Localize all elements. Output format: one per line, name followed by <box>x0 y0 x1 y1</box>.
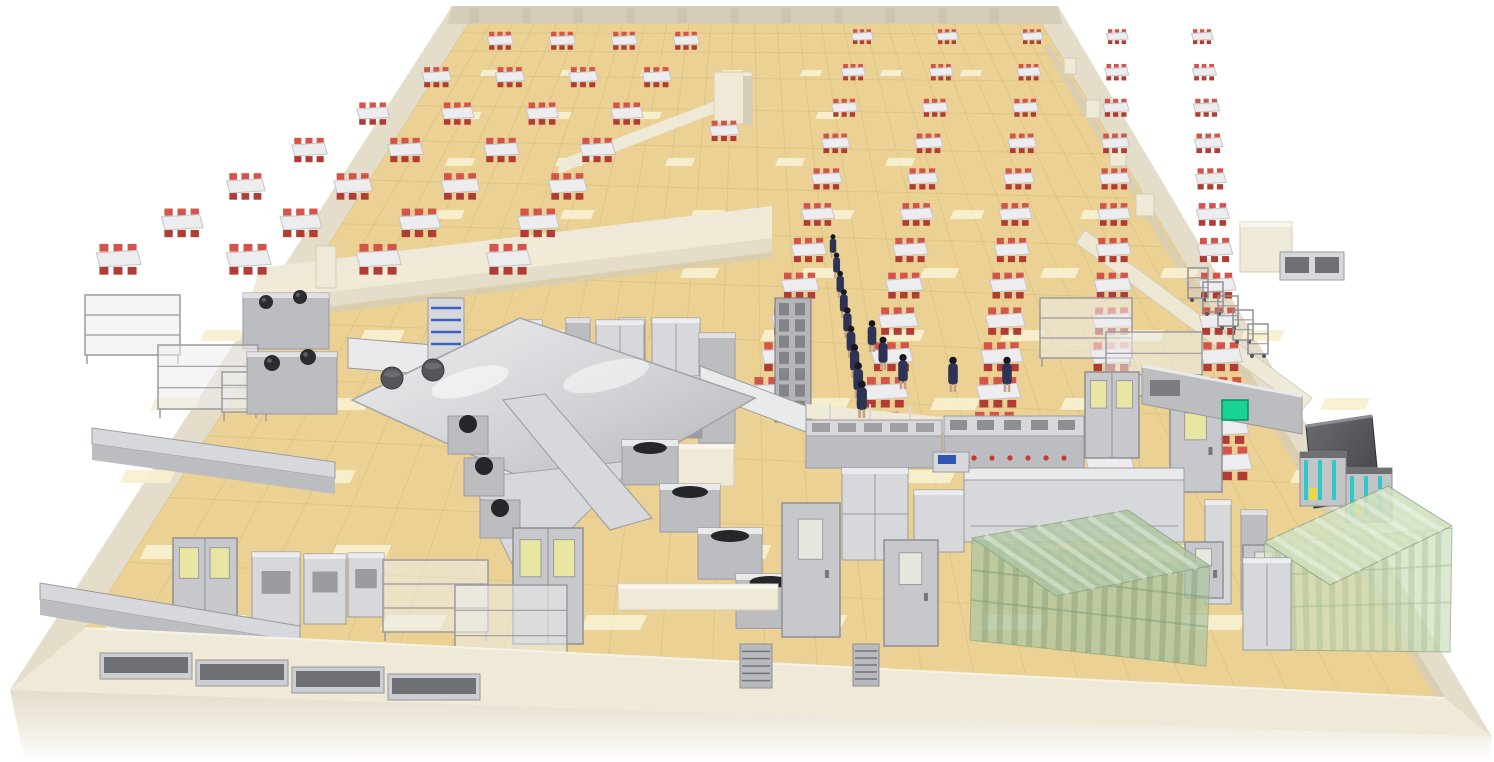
chair-red <box>1220 220 1227 226</box>
table-top <box>1096 243 1131 256</box>
chair-red <box>1030 40 1034 44</box>
chair-red <box>1111 184 1117 189</box>
table-top <box>611 36 637 46</box>
table-top <box>642 71 671 82</box>
dining-table <box>280 209 322 238</box>
chair-red <box>1200 40 1204 44</box>
cubby-cell <box>779 352 789 364</box>
dining-table <box>356 244 401 275</box>
chair-red <box>582 156 589 162</box>
chair-red <box>1195 112 1200 117</box>
chair-red <box>867 377 876 385</box>
chair-red <box>1235 436 1244 444</box>
chair-red <box>816 256 823 262</box>
chair-red <box>1013 328 1021 335</box>
dining-table <box>710 121 740 141</box>
chair-red <box>919 184 925 189</box>
chair-red <box>244 244 253 252</box>
chair-red <box>1203 364 1211 371</box>
dining-table <box>1012 99 1038 117</box>
chair-red <box>1121 112 1126 117</box>
door-handle <box>1213 570 1217 578</box>
table-top <box>1194 138 1223 149</box>
chair-red <box>894 307 902 314</box>
box-top <box>672 444 734 449</box>
chair-red <box>359 267 368 275</box>
chair-red <box>858 76 863 80</box>
chair-red <box>305 138 312 144</box>
teal-strip <box>1304 460 1308 500</box>
chair-red <box>935 148 941 153</box>
chair-red <box>1105 99 1110 104</box>
floor-drain <box>853 644 879 686</box>
food-well <box>890 423 908 432</box>
chair-red <box>1001 220 1008 226</box>
chair-red <box>549 119 555 125</box>
person-head <box>858 380 866 388</box>
chair-red <box>1022 220 1029 226</box>
chair-red <box>1031 112 1036 117</box>
chair-red <box>888 273 896 279</box>
dining-table <box>886 273 924 299</box>
floor-light-reflection <box>580 615 647 630</box>
control-panel <box>1058 420 1075 430</box>
person-leg <box>950 384 953 392</box>
chair-red <box>507 67 513 72</box>
dining-table <box>642 67 671 87</box>
table-top <box>495 71 524 82</box>
chair-red <box>814 220 821 226</box>
kettle-lid <box>264 355 280 371</box>
chair-red <box>374 244 383 252</box>
chair-red <box>1121 220 1128 226</box>
trough-basin <box>200 664 284 680</box>
low-wall <box>618 584 778 610</box>
chair-red <box>653 67 659 72</box>
table-top <box>357 107 389 119</box>
table-top <box>871 348 913 364</box>
chair-red <box>454 119 460 125</box>
chair-red <box>1008 238 1015 244</box>
chair-red <box>940 112 945 117</box>
yellow-tag <box>1309 488 1317 500</box>
chair-red <box>832 148 838 153</box>
green-screen <box>1222 400 1248 420</box>
blue-display <box>938 455 956 464</box>
chair-red <box>888 292 896 298</box>
person-leg <box>884 362 886 370</box>
chair-red <box>1204 112 1209 117</box>
chair-red <box>917 148 923 153</box>
chair-red <box>283 209 291 216</box>
pillar-shade <box>743 76 752 124</box>
person-head <box>831 234 836 239</box>
chair-red <box>850 112 855 117</box>
chair-red <box>582 138 589 144</box>
table-top <box>549 36 575 46</box>
cooking-kettle <box>622 440 678 485</box>
chair-red <box>551 173 559 180</box>
person-body <box>833 257 840 272</box>
glass-stripe <box>1177 565 1181 663</box>
table-top <box>442 107 474 119</box>
table-top <box>1098 208 1131 220</box>
table-top <box>673 36 699 46</box>
chair-red <box>613 45 618 50</box>
chair-red <box>1015 184 1021 189</box>
dining-table <box>811 168 842 189</box>
chair-red <box>576 193 584 200</box>
chair-red <box>1023 40 1027 44</box>
chair-red <box>507 82 513 87</box>
chair-red <box>164 230 172 237</box>
person-leg <box>904 381 907 389</box>
dining-table <box>878 307 918 334</box>
door-window <box>520 540 541 577</box>
chair-red <box>433 82 439 87</box>
chair-red <box>1097 273 1105 279</box>
chair-red <box>912 292 920 298</box>
red-knob <box>1043 455 1048 460</box>
chair-red <box>305 156 312 162</box>
table-top <box>999 208 1032 220</box>
chair-red <box>1202 328 1210 335</box>
dining-table <box>1099 168 1130 189</box>
chair-red <box>551 193 559 200</box>
table-top <box>976 383 1020 400</box>
chair-red <box>992 273 1000 279</box>
chair-red <box>359 119 365 125</box>
chair-red <box>99 244 108 252</box>
chair-red <box>547 230 555 237</box>
cart-wheel <box>1190 298 1194 302</box>
table-top <box>1191 32 1213 40</box>
machine-inset <box>312 572 337 593</box>
kettle-lid-shine <box>303 352 308 357</box>
wok-opening <box>475 457 493 475</box>
box-top <box>348 553 384 558</box>
beige-counter <box>672 444 734 486</box>
chair-red <box>906 256 913 262</box>
chair-red <box>444 102 450 108</box>
chair-red <box>380 119 386 125</box>
chair-red <box>1202 76 1207 80</box>
chair-red <box>1023 29 1027 33</box>
floor-light-reflection <box>950 210 985 219</box>
table-top <box>1021 32 1043 40</box>
chair-red <box>814 168 820 173</box>
chair-red <box>1204 99 1209 104</box>
chair-red <box>229 267 238 275</box>
chair-red <box>1016 292 1024 298</box>
chair-red <box>551 32 556 37</box>
dining-table <box>1098 203 1131 226</box>
chair-red <box>229 244 238 252</box>
chair-red <box>563 193 571 200</box>
person-head <box>854 362 861 369</box>
chair-red <box>945 40 949 44</box>
chair-red <box>337 193 345 200</box>
person-head <box>880 337 887 344</box>
chair-red <box>881 377 890 385</box>
chair-red <box>1108 29 1112 33</box>
table-top <box>1195 173 1226 184</box>
chair-red <box>559 45 564 50</box>
floor-light-reflection <box>920 268 959 278</box>
chair-red <box>498 67 504 72</box>
door-window <box>1116 381 1132 409</box>
table-top <box>1193 103 1219 113</box>
chair-red <box>1019 64 1024 68</box>
veg-prep-machine <box>348 553 384 617</box>
table-top <box>1198 278 1236 292</box>
table-top <box>781 278 819 292</box>
person-leg <box>869 345 871 352</box>
chair-red <box>1098 256 1105 262</box>
sterilizer <box>933 452 969 472</box>
single-door <box>782 503 840 637</box>
wok-opening <box>459 415 477 433</box>
chair-red <box>1103 134 1109 139</box>
floor-light-reflection <box>680 268 719 278</box>
trough-basin <box>104 657 188 673</box>
chair-red <box>1112 148 1118 153</box>
dining-table <box>495 67 524 87</box>
soiled-dish-sink <box>1280 252 1344 280</box>
cabinet-top <box>1300 452 1346 458</box>
chair-red <box>593 138 600 144</box>
chair-red <box>1010 134 1016 139</box>
chair-red <box>1112 134 1118 139</box>
person-body <box>830 239 836 253</box>
chair-red <box>349 173 357 180</box>
cabinet-top <box>1346 468 1392 474</box>
cart-wheel <box>1262 354 1266 358</box>
door-window <box>798 519 822 559</box>
table-top <box>710 125 740 136</box>
chair-red <box>814 184 820 189</box>
chair-red <box>721 121 727 126</box>
chair-red <box>924 99 929 104</box>
red-knob <box>971 455 976 460</box>
dining-table <box>1103 99 1129 117</box>
glass-stripe <box>1411 531 1412 651</box>
chair-red <box>1019 256 1026 262</box>
chair-red <box>833 112 838 117</box>
chair-red <box>1217 364 1225 371</box>
table-top <box>1197 243 1232 256</box>
person-body <box>1002 363 1012 384</box>
floor-light-reflection <box>800 70 822 76</box>
chair-red <box>1014 112 1019 117</box>
cubby-cell <box>779 368 789 380</box>
red-knob <box>1025 455 1030 460</box>
chair-red <box>832 134 838 139</box>
chair-red <box>997 256 1004 262</box>
trough-basin <box>296 671 380 687</box>
floor-light-reflection <box>1040 268 1079 278</box>
chair-red <box>509 156 516 162</box>
box-top <box>699 333 735 338</box>
table-top <box>1196 208 1229 220</box>
chair-red <box>1222 472 1232 480</box>
table-top <box>1200 348 1242 364</box>
table-top <box>484 143 520 156</box>
box-top <box>652 318 700 323</box>
table-top <box>801 208 834 220</box>
chair-red <box>918 256 925 262</box>
dining-table <box>292 138 328 162</box>
dining-table <box>486 244 531 275</box>
chair-red <box>1195 99 1200 104</box>
dining-table <box>1021 29 1043 44</box>
door-window <box>179 548 198 579</box>
chair-red <box>506 45 511 50</box>
chair-red <box>1014 99 1019 104</box>
chair-red <box>337 173 345 180</box>
chair-red <box>841 148 847 153</box>
chair-red <box>1207 168 1213 173</box>
chair-red <box>571 82 577 87</box>
kettle-lid-shine <box>296 293 300 297</box>
table-top <box>1192 67 1216 76</box>
chair-red <box>1196 134 1202 139</box>
cubby-cell <box>795 352 805 364</box>
chair-red <box>952 40 956 44</box>
dining-table <box>994 238 1029 262</box>
wall-pilaster <box>990 8 999 23</box>
chair-red <box>413 156 420 162</box>
floor-drain <box>740 644 772 688</box>
chair-red <box>1217 184 1223 189</box>
table-top <box>1106 32 1128 40</box>
cubby-cell <box>779 303 789 315</box>
floor-light-reflection <box>200 330 245 341</box>
chair-red <box>825 220 832 226</box>
chair-red <box>867 40 871 44</box>
chair-red <box>454 102 460 108</box>
chair-red <box>1110 220 1117 226</box>
dining-table <box>801 203 834 226</box>
chair-red <box>644 82 650 87</box>
chair-red <box>424 82 430 87</box>
dining-table <box>487 32 513 50</box>
chair-red <box>520 209 528 216</box>
chair-red <box>1114 76 1119 80</box>
chair-red <box>99 267 108 275</box>
table-top <box>580 143 616 156</box>
chair-red <box>497 45 502 50</box>
table-top <box>356 250 401 267</box>
dining-table <box>1106 29 1128 44</box>
chair-red <box>881 328 889 335</box>
chair-red <box>1004 273 1012 279</box>
chair-red <box>229 193 237 200</box>
person-head <box>837 271 843 277</box>
person-head <box>848 326 855 333</box>
cubby-cell <box>779 336 789 348</box>
chair-red <box>486 138 493 144</box>
kettle-opening <box>633 442 667 454</box>
table-top <box>569 71 598 82</box>
chair-red <box>853 40 857 44</box>
chair-red <box>1211 238 1218 244</box>
chair-red <box>580 82 586 87</box>
chair-red <box>851 76 856 80</box>
chair-red <box>712 136 718 141</box>
dining-table <box>999 203 1032 226</box>
chair-red <box>926 148 932 153</box>
table-top <box>990 278 1028 292</box>
control-panel <box>1031 420 1048 430</box>
table-top <box>994 243 1029 256</box>
chair-red <box>444 119 450 125</box>
chair-red <box>833 184 839 189</box>
chair-red <box>1209 76 1214 80</box>
person-head <box>844 307 850 313</box>
chair-red <box>1037 40 1041 44</box>
cubby-cell <box>795 319 805 331</box>
box-top <box>304 554 346 559</box>
table-top <box>487 36 513 46</box>
red-knob <box>1007 455 1012 460</box>
chair-red <box>361 193 369 200</box>
dining-table <box>549 173 588 199</box>
table-top <box>981 348 1023 364</box>
chair-red <box>881 400 890 408</box>
chair-red <box>1200 238 1207 244</box>
chair-red <box>900 292 908 298</box>
chair-red <box>428 230 436 237</box>
wall-pilaster <box>730 8 739 23</box>
table-top <box>893 243 928 256</box>
chair-red <box>177 209 185 216</box>
steamer-cabinet <box>247 352 337 414</box>
wall-pilaster <box>782 8 791 23</box>
glass-stripe <box>1424 530 1425 651</box>
chair-red <box>853 29 857 33</box>
chair-red <box>1010 148 1016 153</box>
chair-red <box>805 256 812 262</box>
chair-red <box>489 267 498 275</box>
chair-red <box>895 238 902 244</box>
cart-wheel <box>1235 340 1239 344</box>
dining-table <box>1196 203 1229 226</box>
chair-red <box>191 230 199 237</box>
machine-inset <box>355 569 377 588</box>
trough-basin <box>392 678 476 694</box>
dining-table <box>549 32 575 50</box>
dining-table <box>422 67 451 87</box>
chair-red <box>1019 76 1024 80</box>
floor-light-reflection <box>1160 268 1199 278</box>
machine-inset <box>262 571 291 594</box>
dining-table <box>569 67 598 87</box>
dining-table <box>1003 168 1034 189</box>
table-top <box>1103 103 1129 113</box>
wall-pilaster <box>886 8 895 23</box>
dining-table <box>1197 238 1232 262</box>
dining-table <box>227 173 266 199</box>
cubby-cell <box>795 303 805 315</box>
glass-stripe <box>1437 529 1439 652</box>
dining-table <box>442 102 474 124</box>
dining-table <box>893 238 928 262</box>
chair-red <box>489 244 498 252</box>
chair-red <box>241 193 249 200</box>
chair-red <box>988 307 996 314</box>
chair-red <box>1034 76 1039 80</box>
